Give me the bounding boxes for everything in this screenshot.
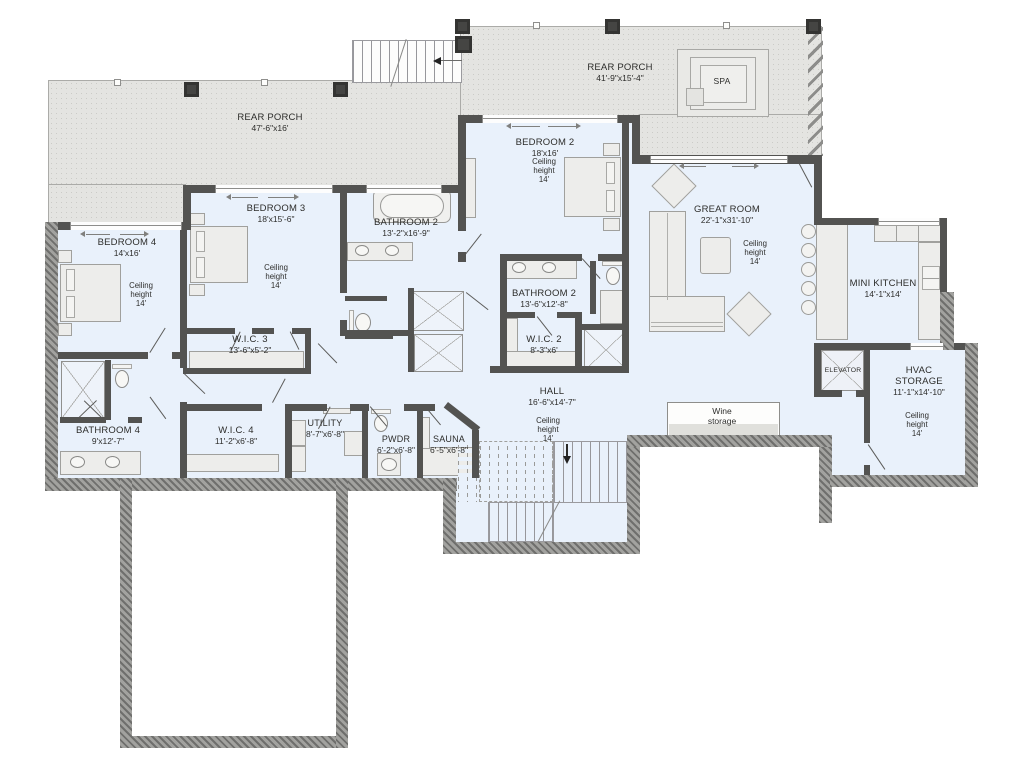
- room-label-rear-porch-right: REAR PORCH 41'-9"x15'-4": [587, 62, 652, 83]
- porch-rail-post: [533, 22, 540, 29]
- room-label-rear-porch-left: REAR PORCH 47'-6"x16': [237, 112, 302, 133]
- room-dims: 9'x12'-7": [76, 436, 140, 446]
- hatched-wall-stair-right: [627, 447, 640, 554]
- hatched-wall-lower-bottom: [120, 736, 348, 748]
- label-wine-storage: Wine storage: [708, 406, 736, 426]
- stairs-down-flight: [553, 441, 629, 503]
- room-name: STORAGE: [893, 376, 945, 387]
- porch-rail-post: [723, 22, 730, 29]
- stairs-direction-line: [440, 60, 462, 61]
- toilet-tank: [602, 261, 624, 266]
- bedroom3-nightstand: [189, 213, 205, 225]
- wine-line: Wine: [708, 406, 736, 416]
- wall-segment: [183, 328, 235, 334]
- bedroom4-nightstand: [58, 323, 72, 336]
- sink-basin: [381, 458, 397, 471]
- wall-segment: [503, 312, 535, 318]
- room-name: ELEVATOR: [825, 367, 862, 374]
- wall-segment: [940, 218, 947, 296]
- wall-segment: [856, 390, 866, 397]
- room-name: GREAT ROOM: [694, 204, 760, 215]
- wall-segment: [285, 404, 327, 411]
- room-name: MINI KITCHEN: [850, 278, 917, 289]
- room-dims: 13'-2"x16'-9": [374, 228, 438, 238]
- casement-arrow-icon: [576, 123, 581, 129]
- bar-stool: [801, 224, 816, 239]
- wall-segment: [814, 390, 842, 397]
- bedroom4-pillow: [66, 296, 75, 318]
- room-dims: 8'-7"x6'-8": [306, 429, 344, 439]
- knee-wall: [345, 296, 387, 301]
- wall-segment: [180, 222, 187, 368]
- toilet-bowl: [374, 415, 388, 432]
- hatched-wall-kitchen-right: [940, 292, 954, 350]
- wall-segment: [598, 254, 629, 261]
- bathroom-cabinet: [600, 290, 624, 324]
- ceiling-line: 14': [536, 435, 560, 444]
- window: [650, 156, 788, 163]
- room-name: REAR PORCH: [587, 62, 652, 73]
- room-dims: 16'-6"x14'-7": [528, 397, 576, 407]
- wall-segment: [814, 343, 821, 397]
- porch-rail-post: [114, 79, 121, 86]
- toilet-tank: [112, 364, 132, 369]
- wine-line: storage: [708, 416, 736, 426]
- room-label-hvac: HVAC STORAGE 11'-1"x14'-10": [893, 365, 945, 397]
- wall-segment: [458, 252, 466, 262]
- window: [482, 115, 618, 123]
- casement-line: [86, 234, 110, 235]
- casement-arrow-icon: [754, 163, 759, 169]
- room-name: REAR PORCH: [237, 112, 302, 123]
- porch-post: [806, 19, 821, 34]
- sink-basin: [385, 245, 399, 256]
- hatched-wall-hvac-bottom: [830, 475, 978, 487]
- room-name: PWDR: [377, 434, 415, 445]
- bedroom3-pillow: [196, 257, 205, 278]
- window: [366, 185, 442, 193]
- shower-stall: [61, 361, 105, 419]
- toilet-bowl: [115, 370, 129, 388]
- wall-segment: [417, 404, 423, 478]
- room-dims: 11'-1"x14'-10": [893, 387, 945, 397]
- bedroom2-nightstand: [603, 143, 620, 156]
- room-name: SAUNA: [430, 434, 468, 445]
- ceiling-label-bedroom2: Ceiling height 14': [532, 158, 556, 185]
- bedroom2-nightstand: [603, 218, 620, 231]
- bedroom3-pillow: [196, 231, 205, 252]
- room-label-elevator: ELEVATOR: [825, 367, 862, 375]
- room-name: W.I.C. 2: [526, 334, 561, 345]
- sink-divider: [922, 278, 940, 279]
- ceiling-line: 14': [264, 282, 288, 291]
- bedroom4-pillow: [66, 269, 75, 291]
- porch-edge-steps: [808, 27, 823, 156]
- room-dims: 14'x16': [98, 248, 157, 258]
- counter-divider: [896, 226, 897, 241]
- casement-line: [268, 197, 294, 198]
- room-label-pwdr: PWDR 6'-2"x6'-8": [377, 434, 415, 455]
- wall-segment: [183, 368, 311, 374]
- room-dims: 14'-1"x14': [850, 289, 917, 299]
- ceiling-label-hvac: Ceiling height 14': [905, 412, 929, 439]
- room-label-wic2: W.I.C. 2 8'-3"x6': [526, 334, 561, 355]
- room-label-hall: HALL 16'-6"x14'-7": [528, 386, 576, 407]
- hatched-wall-bottom: [45, 478, 457, 491]
- room-dims: 8'-3"x6': [526, 345, 561, 355]
- room-dims: 47'-6"x16': [237, 123, 302, 133]
- room-label-bedroom4: BEDROOM 4 14'x16': [98, 237, 157, 258]
- stairs-direction-arrow: [433, 57, 441, 65]
- room-label-wic4: W.I.C. 4 11'-2"x6'-8": [215, 425, 257, 446]
- bar-stool: [801, 262, 816, 277]
- casement-line: [684, 166, 706, 167]
- wall-segment: [285, 404, 292, 478]
- porch-post: [184, 82, 199, 97]
- wall-segment: [590, 261, 596, 314]
- wall-segment: [128, 417, 142, 423]
- room-label-bedroom3: BEDROOM 3 18'x15'-6": [247, 203, 306, 224]
- ceiling-label-bedroom4: Ceiling height 14': [129, 282, 153, 309]
- ceiling-label-great-room: Ceiling height 14': [743, 240, 767, 267]
- room-label-utility: UTILITY 8'-7"x6'-8": [306, 418, 344, 439]
- sink-basin: [70, 456, 85, 468]
- coffee-table: [700, 237, 731, 274]
- wall-segment: [423, 404, 435, 411]
- hatched-wall-left: [45, 222, 58, 490]
- knee-wall: [345, 334, 393, 339]
- utility-sink: [344, 431, 363, 456]
- wall-segment: [814, 155, 822, 225]
- casement-line: [732, 166, 754, 167]
- wic4-shelf: [180, 454, 279, 472]
- ceiling-line: 14': [129, 300, 153, 309]
- wall-segment: [180, 404, 262, 411]
- bedroom2-pillow: [606, 162, 615, 184]
- room-label-bathroom2-upper: BATHROOM 2 13'-2"x16'-9": [374, 217, 438, 238]
- casement-line: [512, 126, 540, 127]
- wall-segment: [472, 430, 479, 478]
- room-name: HALL: [528, 386, 576, 397]
- room-name: W.I.C. 4: [215, 425, 257, 436]
- room-dims: 22'-1"x31'-10": [694, 215, 760, 225]
- room-dims: 11'-2"x6'-8": [215, 436, 257, 446]
- porch-post: [605, 19, 620, 34]
- window: [878, 218, 940, 225]
- casement-line: [232, 197, 258, 198]
- ceiling-label-bedroom3: Ceiling height 14': [264, 264, 288, 291]
- exterior-stairs: [352, 40, 462, 83]
- bedroom3-nightstand: [189, 284, 205, 296]
- wall-segment: [56, 352, 148, 359]
- hatched-wall-greatroom-bottom: [627, 435, 832, 447]
- casement-line: [120, 234, 144, 235]
- room-name: SPA: [714, 76, 731, 86]
- ceiling-line: 14': [532, 176, 556, 185]
- bathtub-inner: [380, 194, 444, 218]
- stairs-direction-arrow: [563, 456, 571, 464]
- wall-segment: [622, 115, 629, 373]
- room-name: BATHROOM 2: [512, 288, 576, 299]
- sink-basin: [542, 262, 556, 273]
- porch-rail-post: [261, 79, 268, 86]
- casement-arrow-icon: [226, 194, 231, 200]
- sofa-cushion-line: [651, 326, 723, 327]
- shower-stall: [414, 334, 463, 372]
- room-name: BEDROOM 2: [516, 137, 575, 148]
- sink-basin: [512, 262, 526, 273]
- bar-stool: [801, 281, 816, 296]
- room-dims: 13'-6"x5'-2": [229, 345, 272, 355]
- porch-post: [455, 19, 470, 34]
- room-name: W.I.C. 3: [229, 334, 272, 345]
- room-dims: 41'-9"x15'-4": [587, 73, 652, 83]
- stairs-lower-flight: [488, 502, 554, 542]
- rear-porch-right-area-lower: [639, 114, 822, 158]
- porch-post: [333, 82, 348, 97]
- hatched-wall-hvac-right: [965, 343, 978, 487]
- room-label-wic3: W.I.C. 3 13'-6"x5'-2": [229, 334, 272, 355]
- room-label-great-room: GREAT ROOM 22'-1"x31'-10": [694, 204, 760, 225]
- room-label-sauna: SAUNA 6'-5"x6'-8": [430, 434, 468, 455]
- window: [215, 185, 333, 193]
- room-dims: 6'-5"x6'-8": [430, 445, 468, 455]
- wall-segment: [105, 360, 111, 420]
- room-dims: 6'-2"x6'-8": [377, 445, 415, 455]
- room-label-bathroom2-lower: BATHROOM 2 13'-6"x12'-8": [512, 288, 576, 309]
- room-name: BEDROOM 4: [98, 237, 157, 248]
- wall-segment: [500, 254, 582, 261]
- sofa-cushion-line: [651, 322, 723, 323]
- hatched-wall-stair-bottom: [443, 542, 639, 554]
- toilet-bowl: [606, 267, 620, 285]
- casement-arrow-icon: [80, 231, 85, 237]
- hatched-wall-lower-right: [336, 478, 348, 748]
- wall-segment: [60, 417, 106, 423]
- bedroom4-nightstand: [58, 250, 72, 263]
- porch-post: [455, 36, 472, 53]
- bar-stool: [801, 300, 816, 315]
- wall-segment: [180, 402, 187, 478]
- casement-arrow-icon: [294, 194, 299, 200]
- counter-divider: [918, 226, 919, 241]
- wall-segment: [408, 288, 414, 372]
- wall-segment: [458, 115, 466, 231]
- bar-stool: [801, 243, 816, 258]
- wall-segment: [340, 193, 347, 293]
- window: [70, 222, 182, 230]
- wall-segment: [362, 404, 368, 478]
- wall-segment: [490, 366, 629, 373]
- ceiling-line: 14': [743, 258, 767, 267]
- hatched-wall-lower-left: [120, 478, 132, 748]
- room-label-mini-kitchen: MINI KITCHEN 14'-1"x14': [850, 278, 917, 299]
- wall-segment: [575, 312, 582, 373]
- window: [910, 343, 944, 350]
- room-label-bathroom4: BATHROOM 4 9'x12'-7": [76, 425, 140, 446]
- sink-basin: [355, 245, 369, 256]
- room-label-spa: SPA: [714, 76, 731, 86]
- spa-step: [686, 88, 704, 106]
- ceiling-label-hall: Ceiling height 14': [536, 417, 560, 444]
- room-name: BATHROOM 4: [76, 425, 140, 436]
- room-name: HVAC: [893, 365, 945, 376]
- sink-basin: [105, 456, 120, 468]
- wall-segment: [582, 324, 628, 330]
- sofa-cushion-line: [667, 213, 668, 300]
- floor-plan: REAR PORCH 47'-6"x16' REAR PORCH 41'-9"x…: [0, 0, 1024, 775]
- room-dims: 18'x15'-6": [247, 214, 306, 224]
- wall-segment: [557, 312, 577, 318]
- room-label-bedroom2: BEDROOM 2 18'x16': [516, 137, 575, 158]
- casement-arrow-icon: [506, 123, 511, 129]
- ceiling-line: 14': [905, 430, 929, 439]
- room-dims: 13'-6"x12'-8": [512, 299, 576, 309]
- bedroom2-pillow: [606, 190, 615, 212]
- casement-arrow-icon: [679, 163, 684, 169]
- stairs-upper-flight: [479, 441, 553, 502]
- casement-line: [548, 126, 576, 127]
- wall-segment: [172, 352, 187, 359]
- room-name: BATHROOM 2: [374, 217, 438, 228]
- shower-stall: [412, 291, 464, 331]
- room-name: UTILITY: [306, 418, 344, 429]
- kitchen-counter-top: [874, 225, 942, 242]
- room-name: BEDROOM 3: [247, 203, 306, 214]
- kitchen-island: [816, 222, 848, 340]
